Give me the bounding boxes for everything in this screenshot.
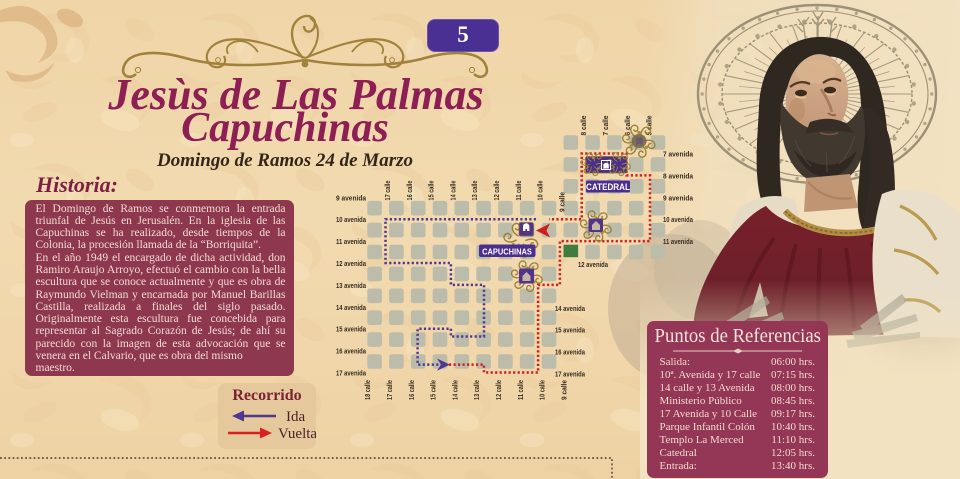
svg-text:11 calle: 11 calle bbox=[516, 380, 525, 400]
svg-text:17 avenida: 17 avenida bbox=[555, 370, 586, 379]
svg-text:9 avenida: 9 avenida bbox=[663, 193, 694, 202]
svg-text:16 avenida: 16 avenida bbox=[336, 347, 367, 356]
svg-text:16 calle: 16 calle bbox=[405, 181, 414, 201]
svg-text:15 calle: 15 calle bbox=[427, 181, 436, 201]
svg-text:15 avenida: 15 avenida bbox=[336, 325, 367, 334]
svg-text:18 calle: 18 calle bbox=[363, 380, 372, 400]
svg-text:11 avenida: 11 avenida bbox=[663, 237, 694, 246]
svg-text:Vuelta: Vuelta bbox=[278, 426, 316, 442]
svg-text:13 calle: 13 calle bbox=[470, 181, 479, 201]
svg-text:9 calle: 9 calle bbox=[559, 380, 568, 400]
svg-text:14 avenida: 14 avenida bbox=[336, 303, 367, 312]
svg-text:14 avenida: 14 avenida bbox=[555, 304, 586, 313]
svg-text:14 calle: 14 calle bbox=[448, 181, 457, 201]
svg-text:16 avenida: 16 avenida bbox=[555, 348, 586, 357]
svg-text:15 calle: 15 calle bbox=[429, 380, 438, 400]
svg-text:6 calle: 6 calle bbox=[623, 116, 632, 136]
svg-text:10 calle: 10 calle bbox=[538, 380, 547, 400]
svg-text:11 calle: 11 calle bbox=[514, 181, 523, 201]
svg-text:7 calle: 7 calle bbox=[601, 116, 610, 136]
svg-text:8 avenida: 8 avenida bbox=[663, 171, 694, 180]
svg-text:12 calle: 12 calle bbox=[494, 380, 503, 400]
svg-text:10 avenida: 10 avenida bbox=[663, 215, 694, 224]
svg-text:10 calle: 10 calle bbox=[536, 181, 545, 201]
svg-text:15 avenida: 15 avenida bbox=[555, 326, 586, 335]
svg-text:12 avenida: 12 avenida bbox=[336, 259, 367, 268]
svg-text:13 avenida: 13 avenida bbox=[336, 281, 367, 290]
svg-text:14 calle: 14 calle bbox=[450, 380, 459, 400]
svg-text:17 avenida: 17 avenida bbox=[336, 369, 367, 378]
svg-text:CATEDRAL: CATEDRAL bbox=[586, 182, 630, 193]
svg-text:9 calle: 9 calle bbox=[557, 192, 566, 212]
svg-text:10 avenida: 10 avenida bbox=[336, 215, 367, 224]
svg-text:7 avenida: 7 avenida bbox=[663, 150, 694, 159]
svg-text:17 calle: 17 calle bbox=[385, 380, 394, 400]
svg-text:12 avenida: 12 avenida bbox=[578, 260, 609, 269]
svg-text:Ida: Ida bbox=[286, 409, 305, 425]
svg-text:9 avenida: 9 avenida bbox=[336, 193, 367, 202]
svg-text:CAPUCHINAS: CAPUCHINAS bbox=[482, 247, 532, 257]
svg-text:12 calle: 12 calle bbox=[492, 181, 501, 201]
svg-text:13 calle: 13 calle bbox=[472, 380, 481, 400]
svg-text:11 avenida: 11 avenida bbox=[336, 237, 367, 246]
svg-text:16 calle: 16 calle bbox=[407, 380, 416, 400]
svg-text:17 calle: 17 calle bbox=[383, 181, 392, 201]
